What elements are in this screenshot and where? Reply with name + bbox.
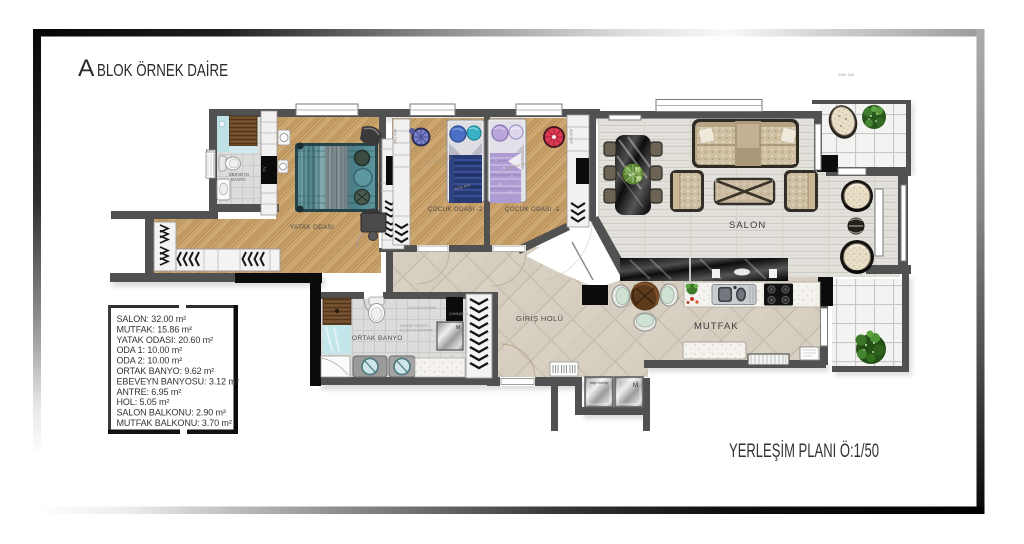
svg-text:BLOK ÖRNEK DAİRE: BLOK ÖRNEK DAİRE xyxy=(97,60,228,80)
svg-text:GİRİŞ HOLÜ: GİRİŞ HOLÜ xyxy=(516,314,563,323)
svg-text:ÇOCUK ODASI -1: ÇOCUK ODASI -1 xyxy=(505,206,560,213)
svg-text:ÇAMAŞIR M.: ÇAMAŞIR M. xyxy=(449,312,469,316)
svg-text:M: M xyxy=(633,383,638,389)
svg-text:SALON: 32.00 m²: SALON: 32.00 m² xyxy=(117,314,187,324)
svg-text:SDK 160: SDK 160 xyxy=(838,72,855,77)
svg-text:YERLEŞİM PLANI Ö:1/50: YERLEŞİM PLANI Ö:1/50 xyxy=(729,439,879,462)
svg-text:ODA 2: 10.00 m²: ODA 2: 10.00 m² xyxy=(117,356,183,366)
svg-text:SALON: SALON xyxy=(729,220,766,231)
svg-text:CAM DUŞAKABİN: CAM DUŞAKABİN xyxy=(408,305,437,310)
svg-text:abgb kumaşı: abgb kumaşı xyxy=(590,381,608,385)
svg-text:ORTAK BANYO: 9.62 m²: ORTAK BANYO: 9.62 m² xyxy=(117,366,215,376)
svg-text:EBEVEYN BANYOSU: 3.12 m²: EBEVEYN BANYOSU: 3.12 m² xyxy=(117,376,239,386)
svg-text:HOL: 5.05 m²: HOL: 5.05 m² xyxy=(117,397,170,407)
svg-text:YATAK ODASI: 20.60 m²: YATAK ODASI: 20.60 m² xyxy=(117,335,214,345)
svg-text:ODA 1: 10.00 m²: ODA 1: 10.00 m² xyxy=(117,345,183,355)
svg-text:TV: TV xyxy=(262,166,267,172)
svg-text:MUTFAK: MUTFAK xyxy=(694,321,739,332)
svg-text:ÇOCUK ODASI -2: ÇOCUK ODASI -2 xyxy=(428,206,483,213)
svg-text:MUTFAK: 15.86 m²: MUTFAK: 15.86 m² xyxy=(117,324,193,334)
svg-text:KLOZET & BATARYA: KLOZET & BATARYA xyxy=(400,329,433,333)
svg-text:AÇIK RAF: AÇIK RAF xyxy=(569,129,573,144)
svg-text:ANTRE: 6.95 m²: ANTRE: 6.95 m² xyxy=(117,387,182,397)
svg-text:AÇIK RAF: AÇIK RAF xyxy=(393,129,397,144)
svg-text:M: M xyxy=(456,325,460,331)
svg-text:ORTAK BANYO: ORTAK BANYO xyxy=(352,335,403,342)
svg-text:A: A xyxy=(78,55,95,82)
svg-text:GÖMME REZERV.: GÖMME REZERV. xyxy=(400,324,429,328)
svg-text:MUTFAK BALKONU: 3.70 m²: MUTFAK BALKONU: 3.70 m² xyxy=(117,418,232,428)
svg-text:BANYO: BANYO xyxy=(231,177,246,182)
svg-text:YATAK ODASI: YATAK ODASI xyxy=(290,224,334,231)
svg-text:SALON BALKONU: 2.90 m²: SALON BALKONU: 2.90 m² xyxy=(117,408,226,418)
